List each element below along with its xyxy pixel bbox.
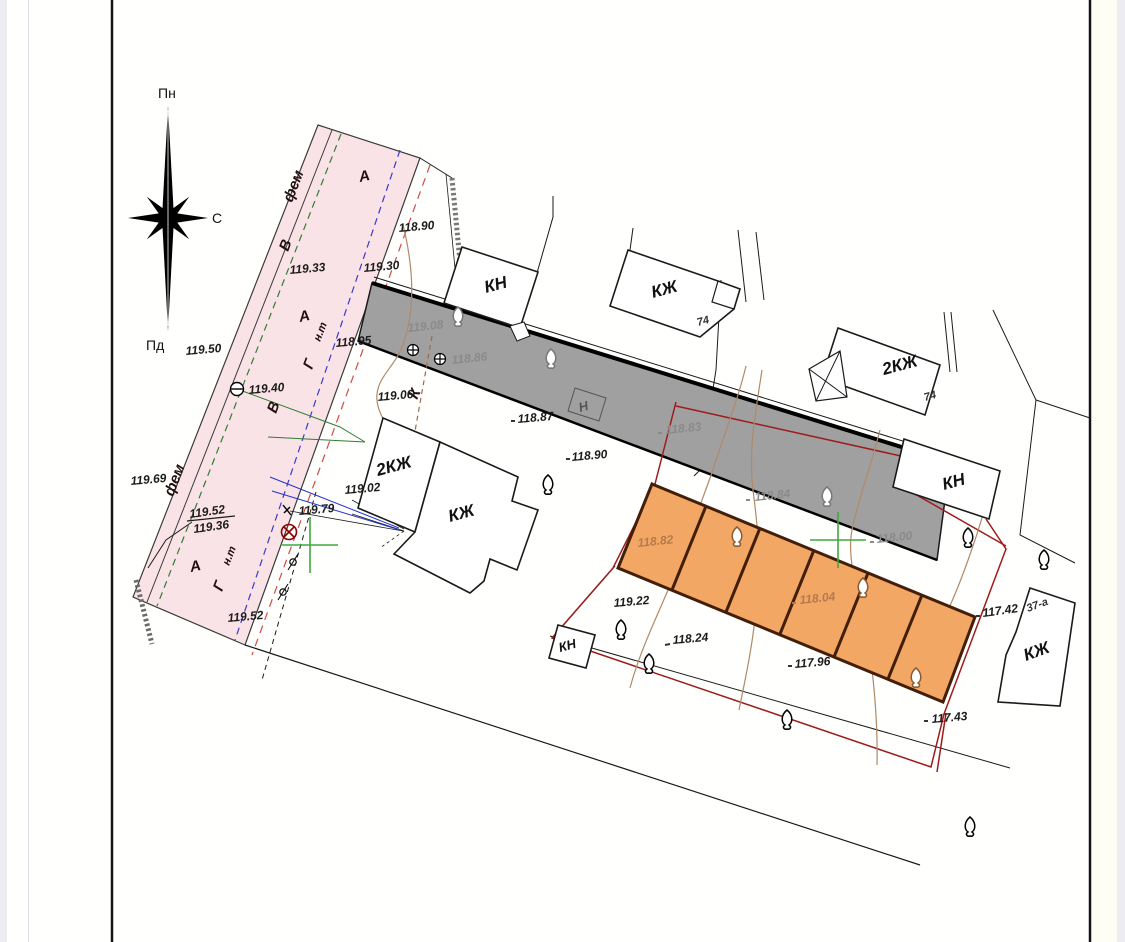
manhole-icon	[231, 383, 244, 396]
tree-icon	[1039, 550, 1049, 569]
tree-icon	[732, 527, 742, 546]
elevation-label: 119.22	[613, 593, 650, 610]
compass-north-label: Пн	[158, 85, 176, 101]
tree-icon	[911, 668, 921, 687]
elevation-label: 118.87	[517, 409, 555, 426]
south-fence	[245, 645, 920, 865]
tree-icon	[858, 578, 868, 597]
elevation-label: 118.90	[398, 218, 435, 235]
tree-icon	[822, 487, 832, 506]
compass-south-label: Пд	[146, 337, 164, 353]
elevation-label: 118.95	[335, 333, 372, 350]
well-icon	[435, 354, 446, 365]
elevation-label: 119.06	[377, 387, 414, 404]
elevation-label: 117.43	[931, 709, 968, 726]
well-icon	[408, 345, 419, 356]
tree-icon	[453, 307, 463, 326]
elevation-label: 119.79	[298, 501, 335, 518]
elevation-label: 117.42	[981, 601, 1019, 620]
tree-icon	[543, 475, 553, 494]
plan-viewport: Пн С Пд фем фем А А А В В Г н.т Г н.т К …	[0, 0, 1125, 942]
tree-icon	[616, 620, 626, 639]
tree-icon	[963, 528, 973, 547]
elevation-label: 119.52	[227, 608, 264, 625]
north-arrow: Пн С Пд	[128, 85, 222, 353]
building-number: 74	[923, 389, 938, 404]
elevation-label: 117.96	[794, 654, 831, 671]
tree-icon	[546, 349, 556, 368]
pole-icon	[278, 584, 288, 600]
tree-icon	[782, 710, 792, 729]
tree-icon	[965, 817, 975, 836]
site-plan-map: Пн С Пд фем фем А А А В В Г н.т Г н.т К …	[0, 0, 1125, 942]
tree-icon	[644, 654, 654, 673]
compass-east-label: С	[212, 210, 222, 226]
elevation-label: 118.90	[571, 447, 608, 464]
elevation-label: 119.30	[363, 258, 400, 275]
pole-icon	[288, 554, 298, 570]
elevation-label: 118.24	[672, 630, 709, 647]
elevation-label: 119.50	[185, 341, 222, 358]
elevation-label: 119.69	[130, 471, 167, 488]
